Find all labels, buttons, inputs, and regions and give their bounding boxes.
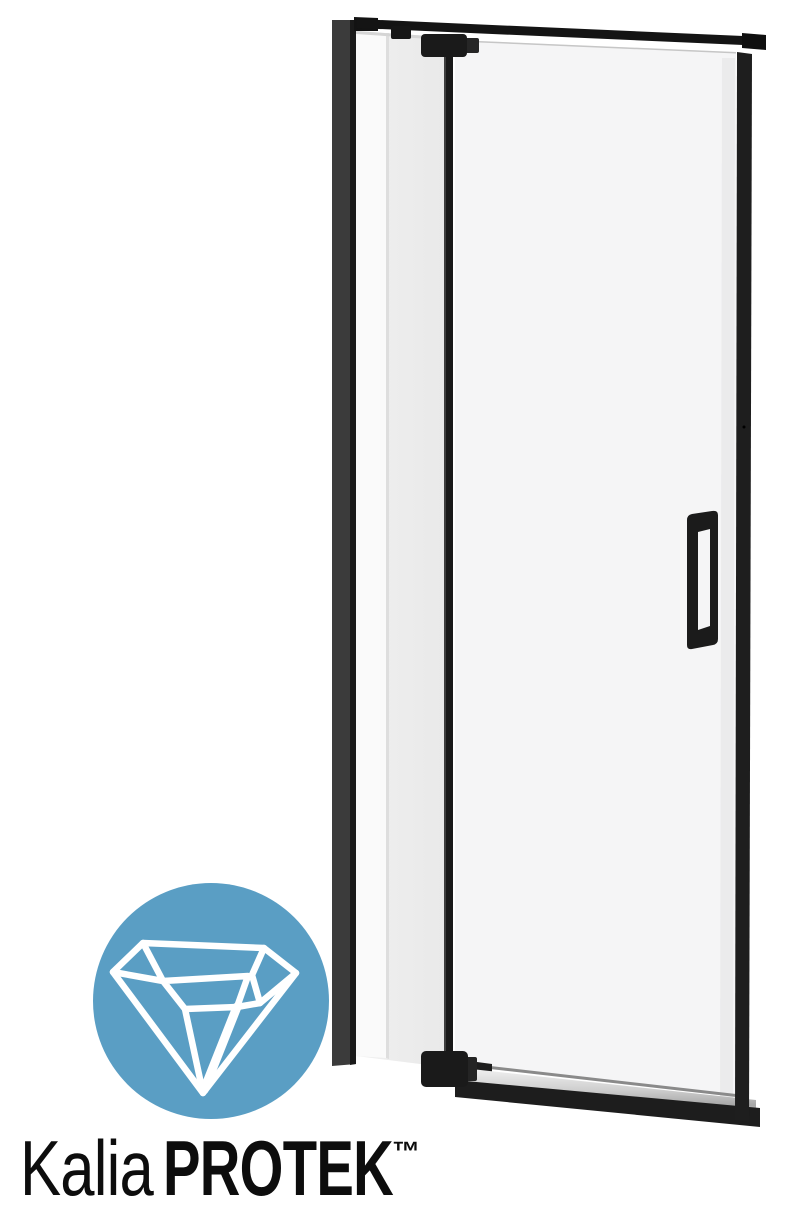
fixed-glass-panel: [356, 31, 444, 1067]
wordmark-protek: PROTEK: [163, 1124, 393, 1212]
fixed-glass-seam-line: [386, 33, 389, 1059]
shower-door-product-render: Kalia PROTEK ™: [0, 0, 787, 1213]
door-glass-right-reflection: [720, 58, 735, 1112]
shower-door: [332, 17, 766, 1127]
trademark-symbol: ™: [392, 1136, 420, 1167]
right-frame-seam-dot: [743, 426, 746, 429]
top-hinge-block: [421, 34, 467, 57]
wall-profile-edge: [350, 20, 356, 1065]
fixed-glass-reflection: [356, 31, 386, 1058]
brand-wordmark: Kalia PROTEK ™: [20, 1124, 420, 1212]
support-bar-glass-clamp: [391, 26, 411, 39]
support-bar-wall-bracket: [742, 33, 766, 50]
bottom-hinge-block: [421, 1051, 468, 1087]
product-photo-canvas: Kalia PROTEK ™: [0, 0, 787, 1213]
brand-badge: [93, 883, 329, 1119]
right-frame: [735, 52, 752, 1122]
wordmark-kalia: Kalia: [20, 1124, 154, 1212]
pivot-rod: [444, 48, 453, 1060]
right-frame-profile: [735, 52, 752, 1122]
pivot-rod-highlight: [444, 48, 446, 1060]
